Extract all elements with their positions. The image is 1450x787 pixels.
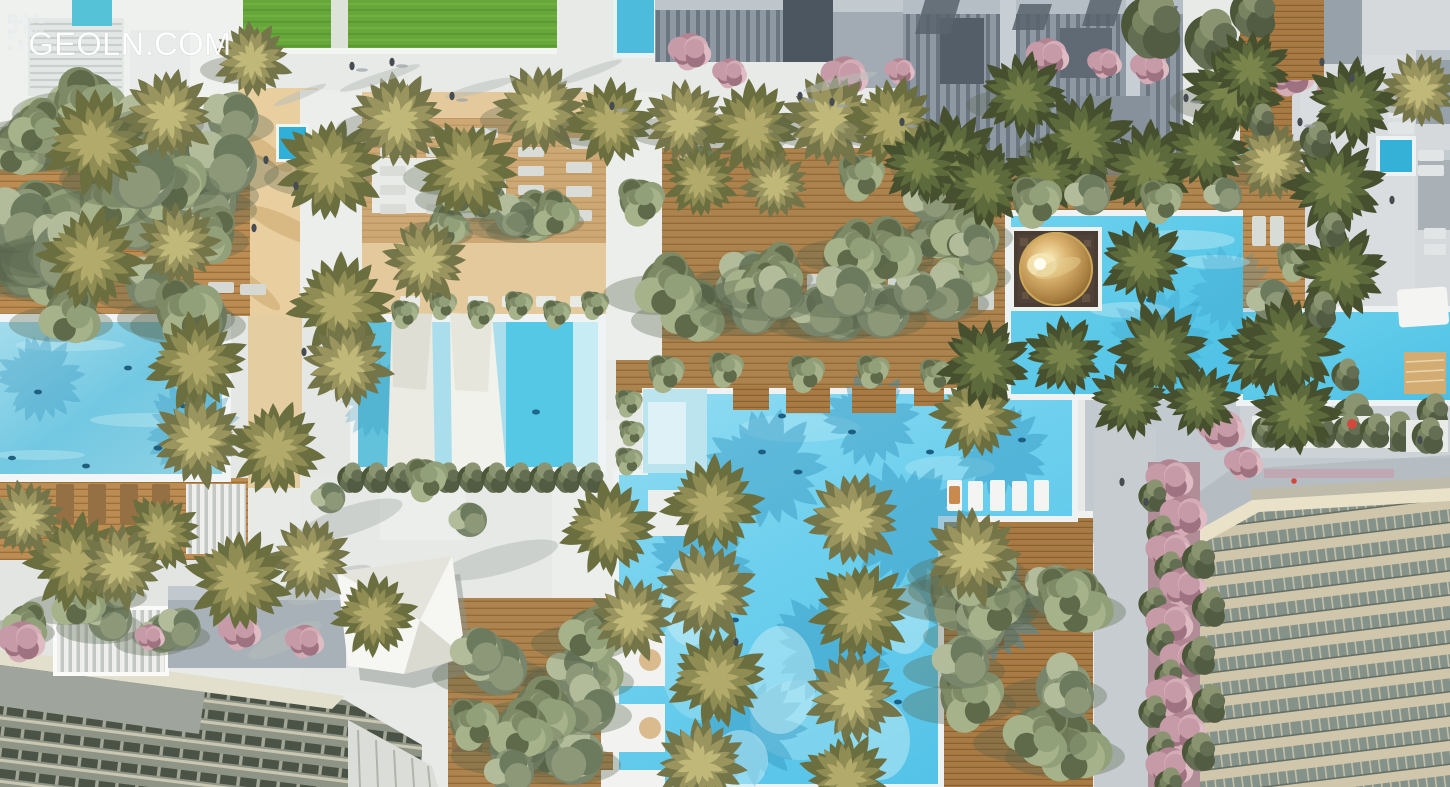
svg-text:GEOLN.COM: GEOLN.COM — [28, 26, 231, 62]
